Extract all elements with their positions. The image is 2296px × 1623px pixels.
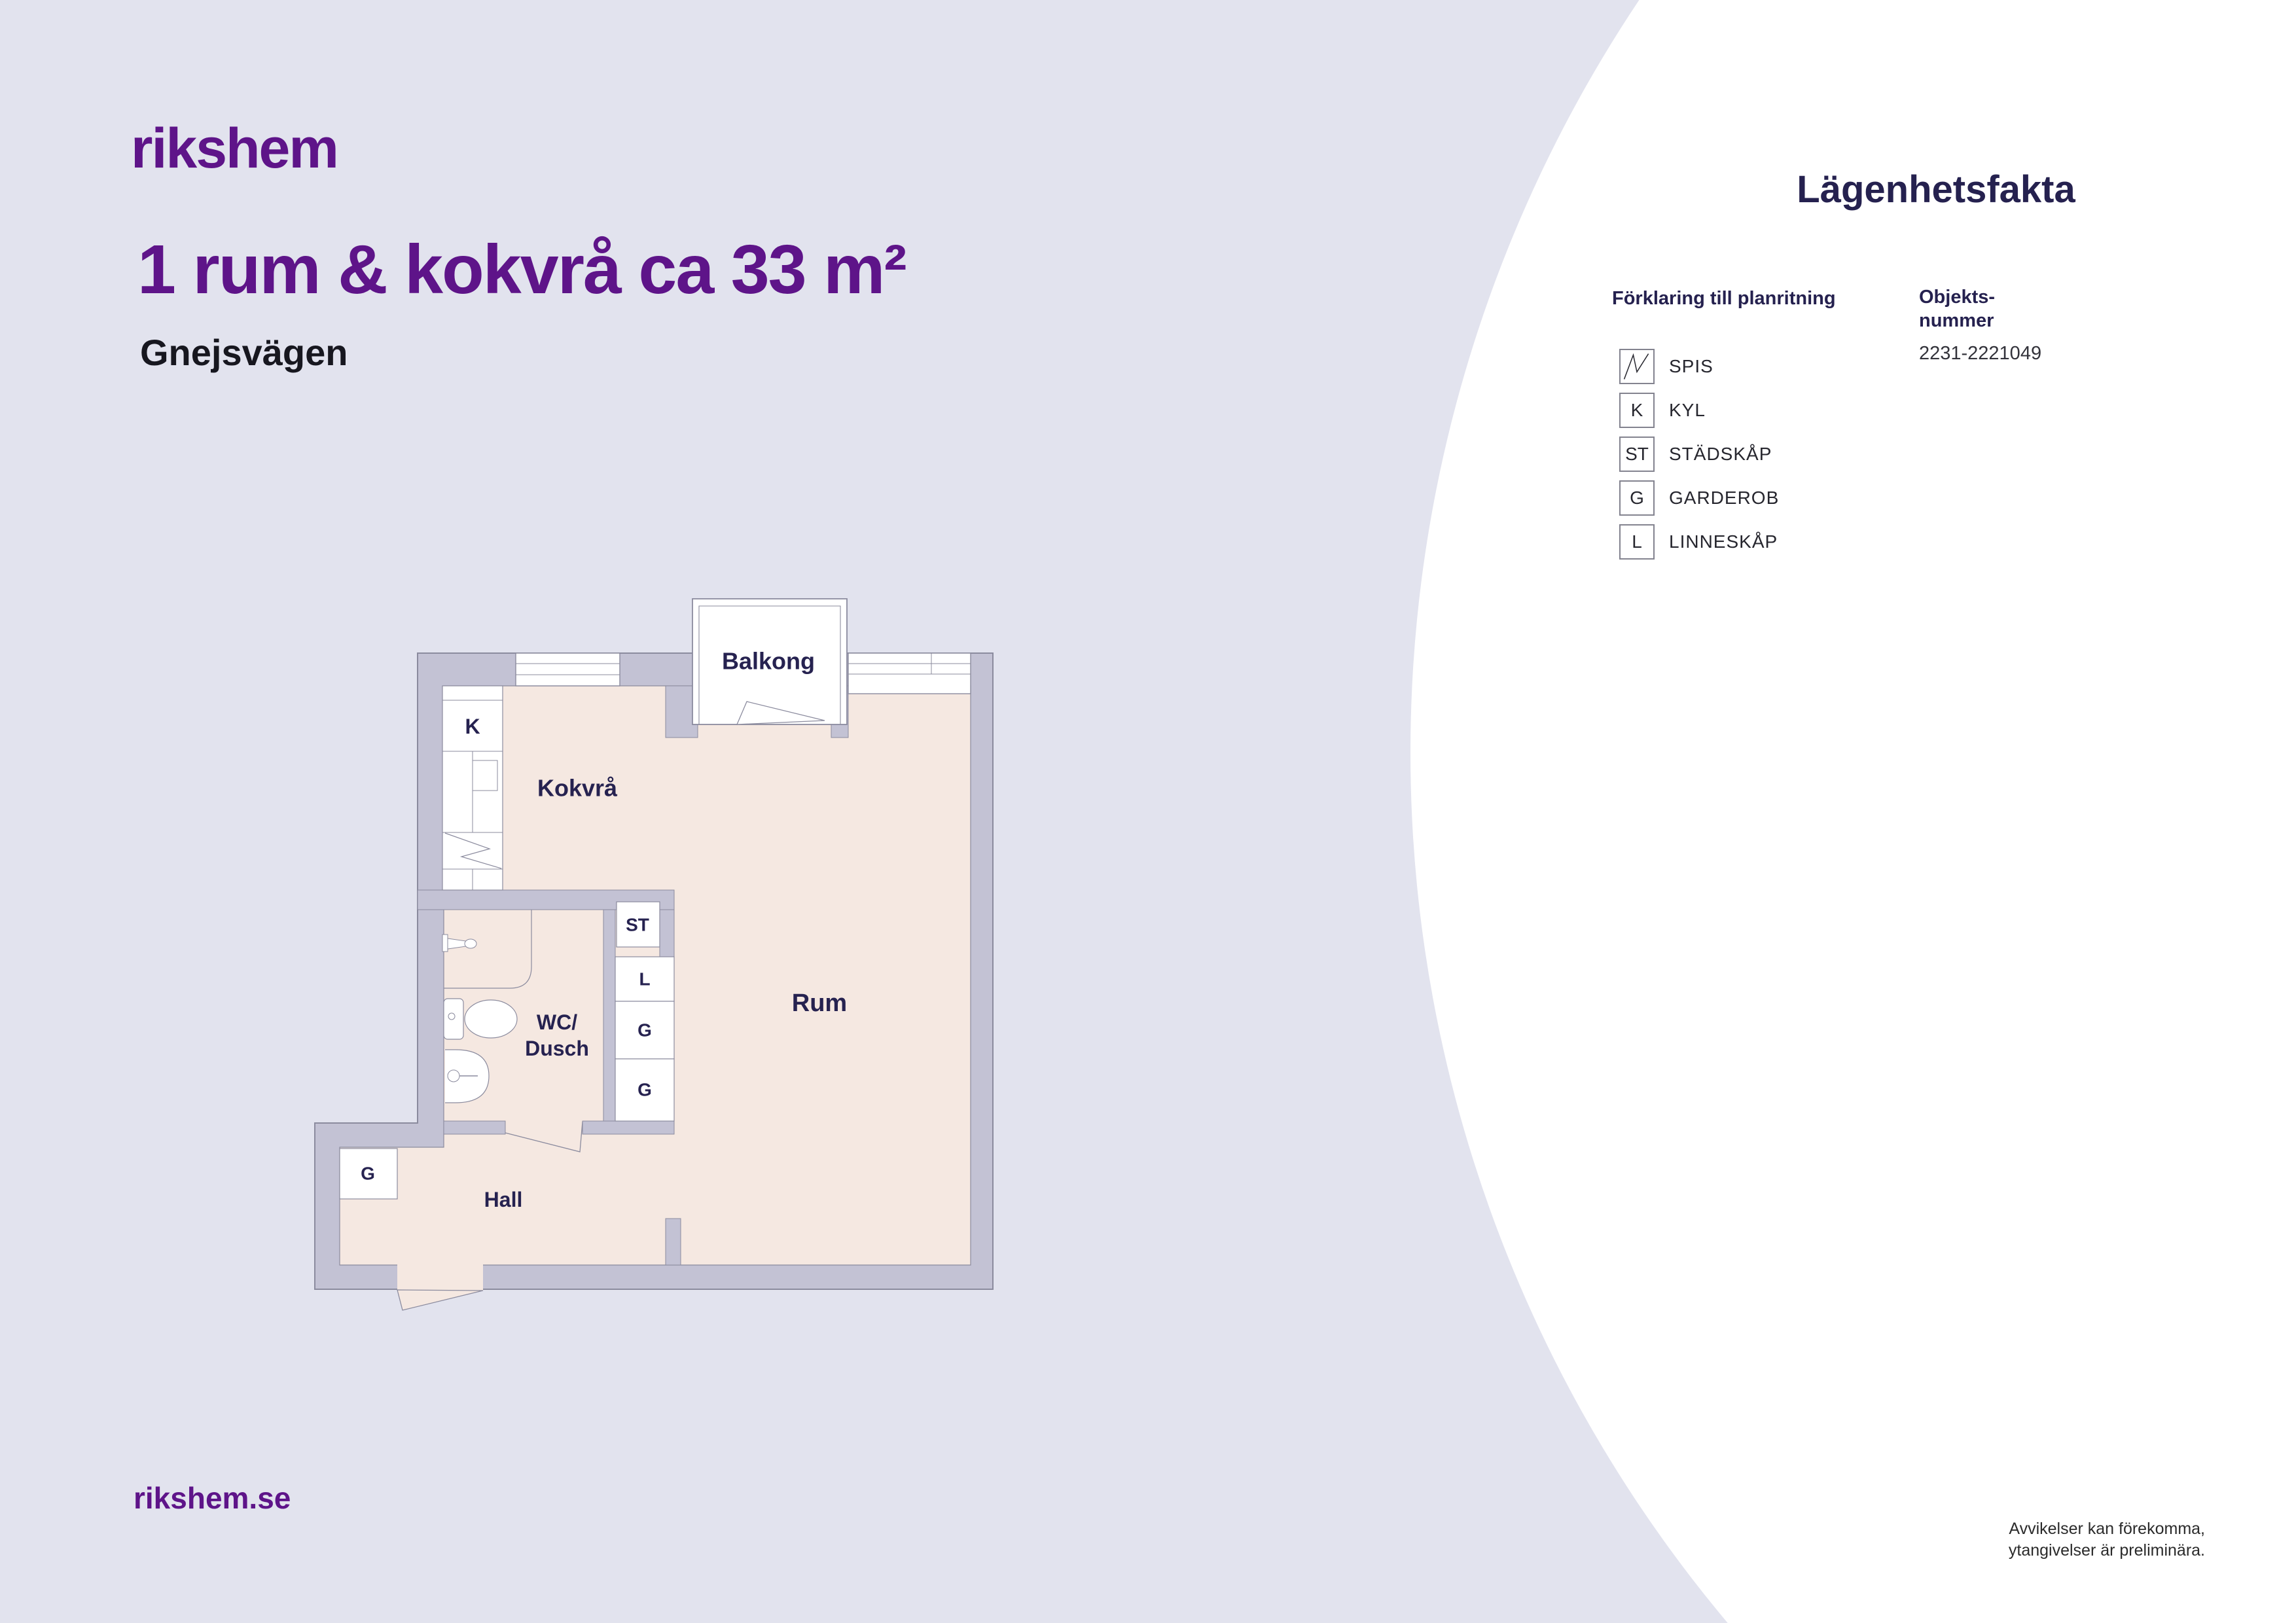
room-label-wc-line2: Dusch	[525, 1037, 589, 1060]
cabinet-label-linen: L	[639, 969, 650, 990]
legend-row-kyl: K KYL	[1619, 392, 1779, 429]
spis-icon	[1619, 349, 1655, 384]
background-circle	[1410, 0, 2296, 1623]
legend-label: LINNESKÅP	[1669, 531, 1778, 552]
website-link: rikshem.se	[134, 1480, 291, 1516]
room-label-room: Rum	[792, 990, 847, 1017]
cabinet-label-wardrobe2: G	[637, 1080, 652, 1100]
room-label-hall: Hall	[484, 1188, 523, 1211]
street-name: Gnejsvägen	[140, 331, 348, 374]
disclaimer-line2: ytangivelser är preliminära.	[2009, 1540, 2205, 1561]
linneskap-symbol: L	[1619, 524, 1655, 560]
legend-row-spis: SPIS	[1619, 348, 1779, 385]
legend-row-garderob: G GARDEROB	[1619, 480, 1779, 516]
cabinet-label-fridge: K	[465, 715, 480, 738]
legend-label: SPIS	[1669, 356, 1713, 377]
kyl-symbol: K	[1619, 393, 1655, 428]
object-number-label: Objekts-nummer	[1919, 285, 2050, 333]
wall-stub-hall-room	[666, 1219, 681, 1265]
floorplan-legend: SPIS K KYL ST STÄDSKÅP G GARDEROB L LINN…	[1619, 348, 1779, 567]
stadskap-symbol: ST	[1619, 437, 1655, 472]
window-right	[848, 653, 971, 694]
room-label-balcony: Balkong	[722, 648, 815, 675]
page-title: 1 rum & kokvrå ca 33 m²	[137, 230, 906, 310]
wall-wc-bottom-left	[444, 1121, 505, 1134]
disclaimer-line1: Avvikelser kan förekomma,	[2009, 1518, 2205, 1540]
wall-wc-right	[603, 910, 615, 1134]
legend-label: STÄDSKÅP	[1669, 444, 1772, 465]
cabinet-label-wardrobe1: G	[637, 1020, 652, 1041]
page: rikshem 1 rum & kokvrå ca 33 m² Gnejsväg…	[0, 0, 2296, 1623]
legend-title: Förklaring till planritning	[1612, 288, 1836, 310]
cabinet-label-cleaning: ST	[626, 915, 649, 935]
floorplan-drawing: Balkong Kokvrå Rum WC/ Dusch Hall K ST L…	[301, 576, 1021, 1427]
legend-row-stadskap: ST STÄDSKÅP	[1619, 436, 1779, 473]
facts-title: Lägenhetsfakta	[1766, 168, 2106, 211]
wall-st-right	[660, 910, 674, 957]
toilet-bowl	[465, 1000, 517, 1038]
object-number-value: 2231-2221049	[1919, 343, 2041, 365]
garderob-symbol: G	[1619, 480, 1655, 516]
entry-door-opening	[397, 1264, 483, 1291]
window-left	[516, 653, 620, 686]
room-label-wc-line1: WC/	[537, 1010, 577, 1034]
entry-door-swing	[397, 1290, 483, 1310]
legend-row-linneskap: L LINNESKÅP	[1619, 524, 1779, 560]
disclaimer: Avvikelser kan förekomma, ytangivelser ä…	[2009, 1518, 2205, 1561]
legend-label: GARDEROB	[1669, 488, 1779, 508]
rikshem-logo: rikshem	[131, 116, 338, 181]
cabinet-label-wardrobe-hall: G	[361, 1164, 375, 1184]
room-label-kitchenette: Kokvrå	[537, 775, 618, 802]
floorplan: Balkong Kokvrå Rum WC/ Dusch Hall K ST L…	[301, 576, 1021, 1427]
wall-wc-bottom-right	[583, 1121, 674, 1134]
wc-faucet	[442, 935, 448, 952]
spis-zigzag-icon	[1621, 349, 1653, 384]
legend-label: KYL	[1669, 400, 1706, 421]
